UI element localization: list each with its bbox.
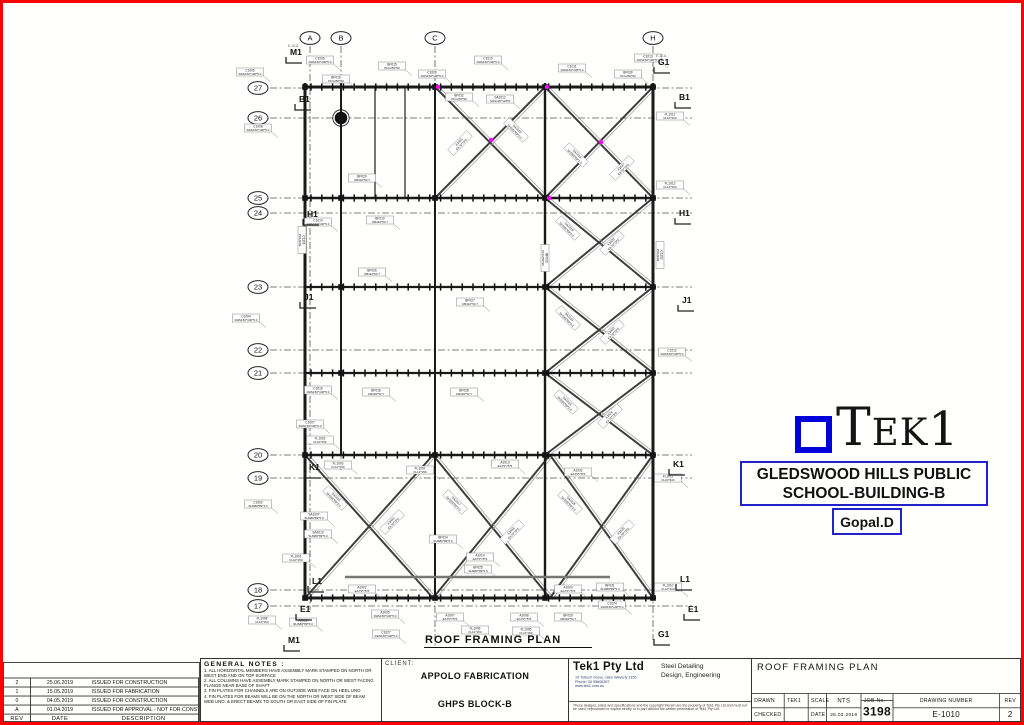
member-label: A1008EA75*75*6 [511,613,545,627]
date-cell: 01.04.2019 [31,705,89,714]
member-label: C1010RHS150*100*5.0 [475,56,509,70]
grid-bubble: B [331,32,351,45]
roof-framing-plan-drawing: 2726252423222120191817ABCHC1005RHS150*10… [0,0,1024,725]
svg-text:UB410*53.7: UB410*53.7 [462,302,479,306]
svg-text:RHS150*100*5.0: RHS150*100*5.0 [637,58,660,62]
member-label: BF019UB410*53.7 [367,216,401,230]
svg-text:FL10*150: FL10*150 [289,558,302,562]
member-label: SA1016SHS89*89*5.0 [504,118,529,143]
grid-bubble: 23 [248,281,268,294]
drawing-number-value: E-1010 [893,707,999,721]
member-label: C1008RHS150*100*5.0 [245,124,279,138]
member-label: FL1002FL10*150 [307,436,341,450]
grid-bubble: H [643,32,663,45]
member-label: C1005RHS150*100*5.0 [237,68,271,82]
section-marker: K1 [669,459,685,475]
company-services: Steel Detailing Design, Engineering [661,663,720,680]
company-disclaimer: These designs, plans and specifications … [573,704,749,712]
section-marker: M1 [284,635,300,651]
member-label: A1018EA75*75*6 [500,520,525,545]
svg-text:J1: J1 [682,295,692,305]
note-item: 4. FIN PLATES FOR BEAMS WILL BE ON THE N… [204,695,375,704]
member-label: C1006RHS150*100*5.0 [307,56,341,70]
client-name: APPOLO FABRICATION [382,671,568,681]
section-marker: G1 [654,629,670,645]
member-label: BF020UB410*53.7 [349,174,383,188]
member-label: A1026EA75*75*6 [610,520,635,545]
desc-cell: ISSUED FOR CONSTRUCTION [89,696,199,705]
svg-text:FL10*150: FL10*150 [313,440,326,444]
note-item: 1. ALL HORIZONTAL MEMBERS HAVE ASSEMBLY … [204,669,375,678]
general-notes-block: GENERAL NOTES : 1. ALL HORIZONTAL MEMBER… [200,658,382,722]
svg-text:FL10*200: FL10*200 [661,478,674,482]
svg-text:RHS150*100*5.0: RHS150*100*5.0 [235,318,258,322]
member-label: C1004RHS150*100*5.0 [233,314,267,328]
svg-text:C: C [432,34,438,43]
svg-text:24: 24 [254,209,262,218]
svg-text:250UC89: 250UC89 [656,249,660,262]
member-label: SA1019SHS89*89*5.0 [556,216,581,241]
revision-table: 2 25.06.2019 ISSUED FOR CONSTRUCTION 1 1… [3,662,200,722]
svg-text:RHS150*100*5.0: RHS150*100*5.0 [309,60,332,64]
section-marker: M1E-1011 [286,44,302,63]
svg-text:22: 22 [254,346,262,355]
rev-cell: A [4,705,31,714]
scale-label: SCALE [809,693,827,707]
project-title-box: GLEDSWOOD HILLS PUBLIC SCHOOL-BUILDING-B [740,461,988,506]
member-label: C1009RHS150*100*5.0 [419,70,453,84]
svg-text:25: 25 [254,194,262,203]
member-label: C1007RHS150*100*5.0 [297,420,331,434]
svg-text:G1: G1 [658,629,670,639]
grid-bubble: 20 [248,449,268,462]
svg-text:RHS150*100*5.0: RHS150*100*5.0 [561,68,584,72]
member-label: BF015PFC250*90 [379,62,413,76]
member-label: BF026UB410*53.7 [359,268,393,282]
member-label: BF018UB410*53.7 [363,388,397,402]
svg-text:L1: L1 [680,574,690,584]
member-label: FL1001FL10*150 [283,554,317,568]
drawing-sheet: { "colors": {"page_border": "#ff0000", "… [0,0,1024,725]
rev-cell: 0 [4,696,31,705]
member-label: SA1012SHS125*125*8 [487,95,521,109]
date-cell: 15.05.2019 [31,687,89,696]
section-marker: B1 [675,92,691,108]
svg-text:EA75*75*6: EA75*75*6 [443,617,458,621]
desc-cell: ISSUED FOR FABRICATION [89,687,199,696]
svg-text:RHS89*89*5.0: RHS89*89*5.0 [293,622,313,626]
description-header: DESCRIPTION [89,714,199,723]
rev-cell: 2 [4,678,31,687]
svg-text:H1: H1 [307,209,318,219]
logo-digit-one: 1 [928,402,959,457]
member-label: FL1012FL10*200 [657,112,691,126]
svg-text:EA75*75*6: EA75*75*6 [571,472,586,476]
company-divider [569,701,751,702]
titleblock-drawing-title: ROOF FRAMING PLAN [757,662,879,673]
svg-text:FL10*150: FL10*150 [331,465,344,469]
drawn-value: TEK1 [785,693,809,707]
member-label: C1024RHS150*100*5.0 [599,601,633,615]
grid-bubble: 25 [248,192,268,205]
company-website: www.tek1.com.au [575,685,711,689]
svg-text:RHS150*100*5.0: RHS150*100*5.0 [307,390,330,394]
desc-cell: ISSUED FOR APPROVAL - NOT FOR CONSTRUCTI… [89,705,199,714]
svg-text:FL12*150: FL12*150 [413,470,426,474]
svg-text:PFC250*90: PFC250*90 [384,66,400,70]
company-name: Tek1 Pty Ltd [573,661,644,673]
member-label: A1020EA75*75*6 [600,231,625,256]
svg-text:RHS150*100*5.0: RHS150*100*5.0 [477,60,500,64]
svg-text:UB410*53.7: UB410*53.7 [560,617,577,621]
author-box: Gopal.D [832,508,902,535]
member-label: A1014EA75*75*6 [467,553,501,567]
svg-text:EA75*75*6: EA75*75*6 [498,464,513,468]
revision-table-filler [4,663,199,678]
svg-text:H1: H1 [679,208,690,218]
svg-text:21: 21 [254,369,262,378]
section-marker: K1 [305,462,321,478]
svg-text:RHS150*100*5.0: RHS150*100*5.0 [374,614,397,618]
svg-text:UB410*53.7: UB410*53.7 [368,392,385,396]
section-marker: B1 [295,94,311,110]
drawing-number-label: DRAWING NUMBER [893,693,999,707]
svg-text:A: A [307,34,312,43]
rev-header: REV [4,714,31,723]
svg-text:E1: E1 [688,604,699,614]
svg-text:PFC250*90: PFC250*90 [541,250,545,266]
svg-text:RHS150*100*5.0: RHS150*100*5.0 [247,128,270,132]
grid-bubble: 22 [248,344,268,357]
member-label: BF030PFC250*90 [615,70,649,84]
svg-text:EA75*75*6: EA75*75*6 [561,589,576,593]
member-label: A1016EA75*75*6 [380,510,405,535]
member-label: A1015EA75*75*6 [448,131,473,156]
grid-bubble: 19 [248,472,268,485]
note-item: 3. FIN PLATES FOR CHANNELS ARE ON OUTSID… [204,689,375,694]
member-label: A1005RHS150*100*5.0 [372,610,406,624]
logo-letter-t: T [836,398,872,458]
svg-text:UB410*53.7: UB410*53.7 [372,220,389,224]
section-marker: J1 [678,295,694,311]
svg-text:PFC250*90: PFC250*90 [620,74,636,78]
svg-text:19: 19 [254,474,262,483]
general-notes-title: GENERAL NOTES : [204,661,381,668]
svg-text:M1: M1 [290,47,302,57]
svg-text:PFC250*90: PFC250*90 [328,79,344,83]
svg-text:RHS150*100*5.0: RHS150*100*5.0 [239,72,262,76]
svg-text:SHS89*89*5.0: SHS89*89*5.0 [304,516,324,520]
grid-bubble: 24 [248,207,268,220]
svg-text:FL10*200: FL10*200 [663,185,676,189]
svg-text:B1: B1 [299,94,310,104]
svg-text:SHS89*89*5.0: SHS89*89*5.0 [468,569,488,573]
member-label: BF033PFC250*90 [541,245,549,272]
svg-text:RHS150*100*5.0: RHS150*100*5.0 [421,74,444,78]
member-label: BF029UB410*53.7 [555,613,589,627]
client-block: CLIENT: APPOLO FABRICATION GHPS BLOCK-B [381,658,569,722]
svg-text:SHS89*89*3.5: SHS89*89*3.5 [248,504,268,508]
svg-text:K1: K1 [309,462,320,472]
member-label: SA1021SHS89*89*5.0 [556,306,581,331]
company-service-line1: Steel Detailing [661,663,720,672]
svg-text:B1: B1 [679,92,690,102]
svg-text:ROOF FRAMING PLAN: ROOF FRAMING PLAN [425,634,561,646]
titleblock-table: DRAWN TEK1 SCALE NTS JOB No. DRAWING NUM… [751,693,1021,723]
svg-text:FL10*200: FL10*200 [663,116,676,120]
member-label: A1032EA75*75*6 [565,468,599,482]
svg-text:17: 17 [254,602,262,611]
svg-text:J1: J1 [304,292,314,302]
svg-text:H: H [650,34,655,43]
plan-caption: ROOF FRAMING PLAN [424,634,592,648]
grid-bubble: A [300,32,320,45]
project-title-line2: SCHOOL-BUILDING-B [783,484,946,503]
member-label: FL1003FL10*150 [325,461,359,475]
svg-text:SHS89*89*5.0: SHS89*89*5.0 [433,539,453,543]
section-marker: J1 [300,292,316,308]
member-label: BF027UB410*53.7 [457,298,491,312]
section-marker: H1 [675,208,691,224]
member-label: C1027RHS150*100*5.0 [373,630,407,644]
svg-text:EA75*75*6: EA75*75*6 [517,617,532,621]
member-label: A1013EA75*75*6 [492,460,526,474]
grid-bubble: C [425,32,445,45]
member-label: A1007EA75*75*6 [437,613,471,627]
author-name: Gopal.D [840,514,894,530]
member-label: FL1008FL10*150 [249,616,283,630]
scale-value: NTS [827,693,861,707]
svg-text:SHS125*125*8: SHS125*125*8 [490,99,511,103]
svg-text:UB410*53.7: UB410*53.7 [456,392,473,396]
grid-bubble: 26 [248,112,268,125]
desc-cell: ISSUED FOR CONSTRUCTION [89,678,199,687]
svg-text:UB410*53.7: UB410*53.7 [364,272,381,276]
grid-bubble: 21 [248,367,268,380]
date-label: DATE [809,707,827,721]
svg-text:RHS150*100*5.0: RHS150*100*5.0 [375,634,398,638]
svg-text:PFC250*90: PFC250*90 [451,97,467,101]
svg-text:E-1011: E-1011 [288,44,299,48]
svg-text:RHS150*100*5.0: RHS150*100*5.0 [601,605,624,609]
svg-text:E-1011: E-1011 [656,54,667,58]
date-value: 26.03.2019 [827,707,861,721]
project-title-line1: GLEDSWOOD HILLS PUBLIC [757,465,971,484]
svg-text:27: 27 [254,84,262,93]
date-header: DATE [31,714,89,723]
member-label: BF032PFC250*90 [446,93,480,107]
tek1-logo-square [795,416,832,453]
member-label: C1002SHS89*89*3.5 [245,500,279,514]
svg-text:K1: K1 [673,459,684,469]
svg-text:250UC89: 250UC89 [298,234,302,247]
member-label: FL1013FL10*200 [657,181,691,195]
svg-text:SHS89*89*5.0: SHS89*89*5.0 [600,587,620,591]
checked-value [785,707,809,721]
client-project: GHPS BLOCK-B [382,699,568,709]
date-cell: 25.06.2019 [31,678,89,687]
note-item: 2. ALL COLUMNS HAVE ASSEMBLY MARK STAMPE… [204,679,375,688]
svg-text:L1: L1 [312,576,322,586]
svg-text:EA75*75*6: EA75*75*6 [473,557,488,561]
svg-text:E1: E1 [300,604,311,614]
svg-text:B: B [338,34,343,43]
grid-bubble: 18 [248,584,268,597]
member-label: FL1011FL10*200 [655,474,689,488]
company-service-line2: Design, Engineering [661,672,720,681]
tek1-logo-text: TEK1 [836,400,959,456]
drawn-label: DRAWN [752,693,785,707]
company-block: Tek1 Pty Ltd 19 Tulloch Grove, Glen Wave… [568,658,752,722]
svg-text:FL10*200: FL10*200 [661,587,674,591]
member-label: SA1018SHS89*89*5.0 [564,143,589,168]
section-marker: E1 [684,604,700,620]
rev-label: REV [1000,693,1021,707]
member-label: C1101250UC89 [298,227,306,254]
svg-text:M1: M1 [288,635,300,645]
svg-text:26: 26 [254,114,262,123]
rev-cell: 1 [4,687,31,696]
svg-text:SHS89*89*5.0: SHS89*89*5.0 [308,534,328,538]
svg-text:FL10*150: FL10*150 [255,620,268,624]
member-label: BF028UB410*53.7 [451,388,485,402]
svg-text:23: 23 [254,283,262,292]
section-marker: G1E-1011 [654,54,670,73]
date-cell: 04.05.2019 [31,696,89,705]
client-label: CLIENT: [385,661,414,667]
svg-text:G1: G1 [658,57,670,67]
member-label: C1011RHS150*100*5.0 [559,64,593,78]
rev-value: 2 [1000,707,1021,721]
member-label: C1016RHS150*100*5.0 [305,386,339,400]
member-label: SA1013SHS89*89*5.0 [305,530,339,544]
logo-letters-ek: EK [872,411,929,454]
general-notes-body: 1. ALL HORIZONTAL MEMBERS HAVE ASSEMBLY … [204,669,375,704]
member-label: C1102250UC89 [656,242,664,269]
member-label: A1017EA75*75*6 [610,156,635,181]
checked-label: CHECKED [752,707,785,721]
svg-text:18: 18 [254,586,262,595]
svg-text:20: 20 [254,451,262,460]
grid-bubble: 17 [248,600,268,613]
svg-text:RHS150*100*5.0: RHS150*100*5.0 [299,424,322,428]
job-number-value: 3198 [861,700,893,722]
svg-text:RHS150*100*5.0: RHS150*100*5.0 [661,352,684,356]
grid-bubble: 27 [248,82,268,95]
svg-text:EA75*75*6: EA75*75*6 [355,589,370,593]
member-label: SA1023SHS89*89*5.0 [554,390,579,415]
svg-text:UB410*53.7: UB410*53.7 [354,178,371,182]
